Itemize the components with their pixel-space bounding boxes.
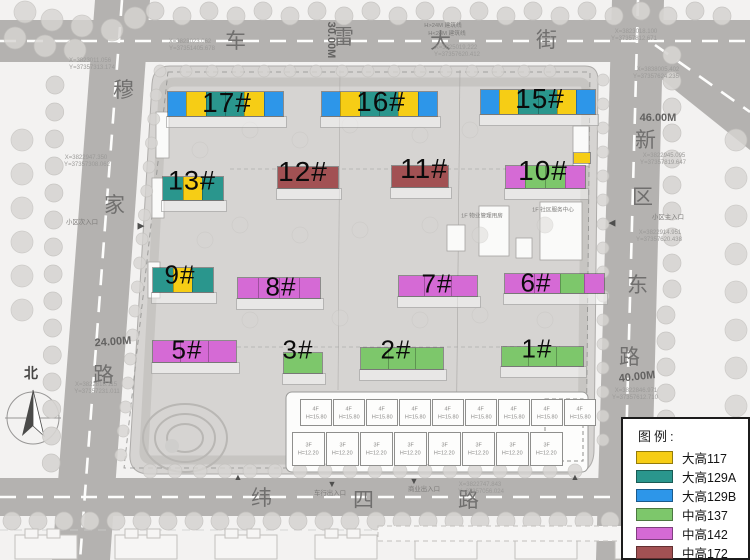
building-label-17: 17#: [202, 87, 252, 119]
building-podium: [504, 188, 589, 200]
unit-floors-label: 3F: [475, 442, 481, 447]
commercial-unit: 4FH=15.80: [498, 399, 530, 426]
legend-label: 大高129A: [682, 467, 736, 486]
commercial-unit: 4FH=15.80: [465, 399, 497, 426]
unit-floors-label: 3F: [305, 442, 311, 447]
entrance-marker: ▶: [138, 221, 145, 232]
legend-swatch: [636, 527, 673, 540]
commercial-unit: 3FH=12.20: [360, 432, 393, 466]
unit-floors-label: 4F: [346, 406, 352, 411]
building-label-7: 7#: [422, 269, 453, 300]
unit-height-label: H=15.80: [504, 414, 525, 419]
coordinate-label: X=3823023.062: [169, 38, 212, 45]
road-label-bottom: 纬: [251, 482, 273, 512]
coordinate-label: X=3838005.402: [637, 66, 680, 73]
coordinate-label: Y=37351405.678: [169, 45, 215, 52]
building-podium: [359, 369, 447, 381]
road-label-right: 路: [619, 341, 641, 371]
legend-label: 中高142: [682, 524, 728, 543]
building-label-1: 1#: [522, 334, 553, 365]
segment-blue: [418, 92, 437, 116]
building-label-15: 15#: [515, 83, 565, 115]
unit-floors-label: 3F: [407, 442, 413, 447]
commercial-unit: 3FH=12.20: [530, 432, 563, 466]
unit-floors-label: 4F: [412, 406, 418, 411]
road-label-right: 东: [627, 269, 649, 299]
unit-height-label: H=15.80: [570, 414, 591, 419]
commercial-unit: 3FH=12.20: [462, 432, 495, 466]
segment-blue: [168, 92, 186, 116]
coordinate-label: Y=37357819.647: [640, 159, 686, 166]
building-podium: [161, 200, 227, 212]
commercial-unit: 4FH=15.80: [333, 399, 365, 426]
unit-height-label: H=12.20: [502, 450, 523, 455]
coordinate-label: X=3822846.971: [615, 387, 658, 394]
coordinate-label: X=3823018.100: [615, 28, 658, 35]
unit-floors-label: 4F: [544, 406, 550, 411]
segment-yellow: [574, 153, 590, 163]
commercial-unit: 4FH=15.80: [366, 399, 398, 426]
building-podium: [390, 187, 452, 199]
building-label-8: 8#: [266, 272, 297, 303]
coordinate-label: X=3822747.843: [459, 481, 502, 488]
legend-label: 中高172: [682, 543, 728, 560]
building-label-9: 9#: [165, 260, 196, 291]
coordinate-label: Y=37357612.710: [612, 394, 658, 401]
road-label-left: 家: [104, 189, 126, 219]
road-label-left: 穆: [113, 74, 135, 104]
site-plan: 图例: 大高117大高129A大高129B中高137中高142中高172 17#…: [0, 0, 750, 560]
commercial-unit: 4FH=15.80: [432, 399, 464, 426]
segment-green: [556, 347, 583, 366]
coordinate-label: Y=37357313.174: [69, 64, 115, 71]
segment-magenta: [238, 278, 258, 298]
entrance-label: 小区主入口: [652, 213, 684, 222]
coordinate-label: X=3822914.951: [639, 229, 682, 236]
building-label-10: 10#: [518, 155, 568, 187]
segment-blue: [481, 90, 499, 114]
coordinate-label: X=3825019.222: [435, 44, 478, 51]
commercial-unit: 3FH=12.20: [496, 432, 529, 466]
unit-height-label: H=12.20: [536, 450, 557, 455]
legend-item: 中高142: [636, 527, 748, 540]
setback-note: H>24M 建筑线: [424, 21, 462, 29]
entrance-marker: ◀: [609, 218, 616, 229]
coordinate-label: Y=37357231.011: [74, 388, 119, 395]
unit-floors-label: 3F: [373, 442, 379, 447]
segment-magenta: [299, 278, 320, 298]
unit-floors-label: 3F: [339, 442, 345, 447]
commercial-unit: 3FH=12.20: [394, 432, 427, 466]
segment-blue: [322, 92, 340, 116]
commercial-unit: 3FH=12.20: [326, 432, 359, 466]
commercial-unit: 4FH=15.80: [300, 399, 332, 426]
coordinate-label: Y=37357624.235: [633, 73, 679, 80]
unit-height-label: H=12.20: [366, 450, 387, 455]
north-label: 北: [24, 363, 38, 383]
building-label-2: 2#: [381, 335, 412, 366]
building-podium: [151, 292, 217, 304]
segment-magenta: [451, 276, 477, 296]
unit-floors-label: 4F: [478, 406, 484, 411]
commercial-unit: 3FH=12.20: [428, 432, 461, 466]
unit-height-label: H=12.20: [332, 450, 353, 455]
segment-magenta: [399, 276, 424, 296]
legend-swatch: [636, 546, 673, 559]
unit-floors-label: 3F: [441, 442, 447, 447]
building-podium: [282, 373, 326, 385]
unit-floors-label: 4F: [577, 406, 583, 411]
road-label-right: 区: [632, 181, 654, 211]
coordinate-label: Y=37357308.062: [64, 161, 110, 168]
legend-item: 中高137: [636, 508, 748, 521]
legend-label: 中高137: [682, 505, 728, 524]
building-block-aux: [574, 153, 590, 163]
park-pond: [165, 439, 179, 453]
commercial-unit: 4FH=15.80: [564, 399, 596, 426]
coordinate-label: Y=37357056.024: [458, 488, 504, 495]
building-podium: [503, 293, 608, 305]
legend-title: 图例:: [638, 426, 748, 445]
legend-item: 中高172: [636, 546, 748, 559]
coordinate-label: Y=37357620.412: [434, 51, 480, 58]
building-label-3: 3#: [283, 335, 314, 366]
unit-floors-label: 4F: [313, 406, 319, 411]
road-label-top: 车: [225, 25, 247, 55]
facility-label: 1F 社区服务中心: [532, 206, 574, 214]
road-width-label: 30.00M: [325, 22, 337, 59]
segment-magenta: [584, 274, 604, 293]
building-podium: [479, 114, 599, 126]
unit-floors-label: 4F: [445, 406, 451, 411]
unit-height-label: H=15.80: [405, 414, 426, 419]
coordinate-label: X=3822818.115: [75, 381, 117, 388]
building-label-16: 16#: [356, 86, 406, 118]
legend: 图例: 大高117大高129A大高129B中高137中高142中高172: [621, 417, 750, 560]
unit-height-label: H=12.20: [468, 450, 489, 455]
segment-blue: [264, 92, 283, 116]
legend-item: 大高117: [636, 451, 748, 464]
facility-label: 1F 物业管理用房: [461, 212, 503, 220]
building-label-5: 5#: [172, 335, 203, 366]
legend-label: 大高117: [682, 448, 727, 467]
unit-floors-label: 4F: [511, 406, 517, 411]
road-label-top: 街: [536, 24, 558, 54]
coordinate-label: X=3822947.350: [65, 154, 108, 161]
road-label-bottom: 四: [353, 484, 375, 514]
entrance-marker: ▲: [234, 472, 243, 482]
coordinate-label: X=3823011.056: [69, 57, 111, 64]
unit-height-label: H=12.20: [298, 450, 319, 455]
building-label-11: 11#: [400, 153, 448, 185]
commercial-unit: 4FH=15.80: [531, 399, 563, 426]
unit-height-label: H=15.80: [372, 414, 393, 419]
unit-height-label: H=15.80: [537, 414, 558, 419]
entrance-label: 小区次入口: [66, 218, 98, 227]
segment-blue: [576, 90, 595, 114]
road-width-label: 24.00M: [94, 335, 131, 350]
commercial-unit: 4FH=15.80: [399, 399, 431, 426]
setback-note: H<24M 建筑线: [428, 29, 466, 37]
entrance-marker: ▼: [410, 476, 419, 486]
legend-swatch: [636, 489, 673, 502]
building-podium: [500, 366, 587, 378]
legend-label: 大高129B: [682, 486, 736, 505]
unit-floors-label: 4F: [379, 406, 385, 411]
coordinate-label: X=3822945.095: [643, 152, 686, 159]
entrance-label: 车行出入口: [314, 489, 346, 498]
entrance-marker: ▲: [571, 472, 580, 482]
coordinate-label: Y=37357620.438: [636, 236, 682, 243]
legend-item: 大高129B: [636, 489, 748, 502]
unit-height-label: H=15.80: [471, 414, 492, 419]
commercial-unit: 3FH=12.20: [292, 432, 325, 466]
segment-green: [560, 274, 584, 293]
building-label-12: 12#: [278, 156, 328, 188]
legend-rows: 大高117大高129A大高129B中高137中高142中高172: [623, 451, 748, 559]
segment-magenta: [565, 166, 585, 188]
offsite-buildings: [15, 526, 677, 559]
unit-height-label: H=12.20: [400, 450, 421, 455]
unit-height-label: H=12.20: [434, 450, 455, 455]
segment-green: [415, 348, 443, 369]
legend-swatch: [636, 508, 673, 521]
road-label-right: 新: [635, 124, 657, 154]
legend-item: 大高129A: [636, 470, 748, 483]
legend-swatch: [636, 451, 673, 464]
legend-swatch: [636, 470, 673, 483]
building-label-6: 6#: [521, 268, 552, 299]
unit-height-label: H=15.80: [438, 414, 459, 419]
unit-height-label: H=15.80: [306, 414, 327, 419]
unit-height-label: H=15.80: [339, 414, 360, 419]
building-label-13: 13#: [168, 166, 216, 197]
unit-floors-label: 3F: [509, 442, 515, 447]
unit-floors-label: 3F: [543, 442, 549, 447]
segment-magenta: [208, 341, 236, 362]
road-width-label: 46.00M: [640, 112, 677, 124]
entrance-marker: ▼: [328, 479, 337, 489]
building-podium: [276, 188, 342, 200]
coordinate-label: Y=37357812.671: [611, 35, 657, 42]
